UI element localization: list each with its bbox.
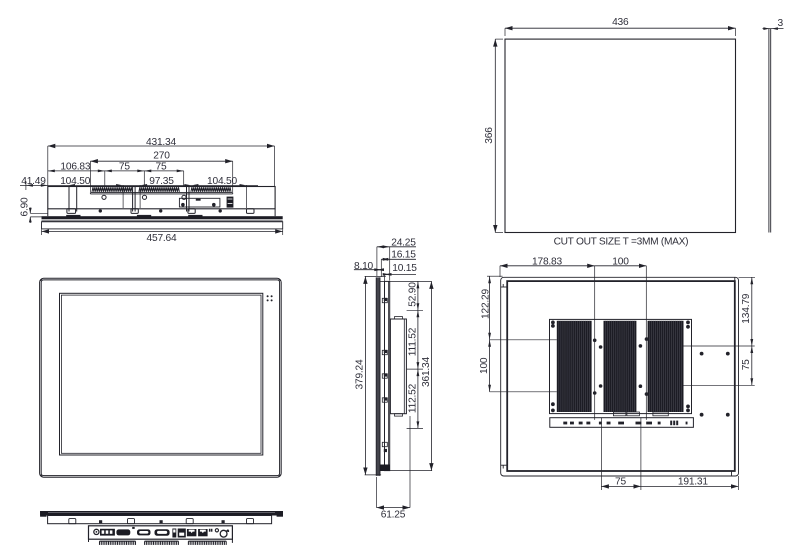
svg-text:100: 100: [612, 256, 629, 267]
svg-text:431.34: 431.34: [146, 137, 176, 148]
svg-text:6.90: 6.90: [20, 197, 31, 217]
svg-text:104.50: 104.50: [60, 176, 90, 187]
svg-text:16.15: 16.15: [391, 250, 416, 261]
svg-text:111.52: 111.52: [407, 327, 418, 356]
svg-text:134.79: 134.79: [741, 293, 752, 323]
svg-text:100: 100: [479, 357, 490, 374]
svg-text:361.34: 361.34: [421, 356, 432, 386]
svg-text:104.50: 104.50: [207, 176, 237, 187]
svg-text:191.31: 191.31: [678, 477, 708, 488]
svg-text:41.49: 41.49: [21, 176, 46, 187]
svg-text:52.90: 52.90: [407, 282, 418, 307]
svg-text:457.64: 457.64: [147, 233, 177, 244]
svg-text:270: 270: [153, 151, 170, 162]
svg-text:75: 75: [615, 477, 626, 488]
svg-text:122.29: 122.29: [480, 288, 491, 318]
svg-text:75: 75: [156, 162, 167, 173]
svg-text:112.52: 112.52: [407, 383, 418, 413]
svg-text:106.83: 106.83: [60, 162, 90, 173]
svg-text:24.25: 24.25: [391, 237, 416, 248]
svg-text:CUT OUT SIZE T =3MM (MAX): CUT OUT SIZE T =3MM (MAX): [554, 236, 689, 247]
svg-text:366: 366: [484, 127, 495, 144]
svg-text:8.10: 8.10: [354, 261, 374, 272]
svg-text:436: 436: [612, 17, 629, 28]
svg-text:75: 75: [741, 359, 752, 370]
svg-text:379.24: 379.24: [354, 359, 365, 389]
svg-text:97.35: 97.35: [149, 176, 174, 187]
svg-text:61.25: 61.25: [381, 510, 406, 521]
svg-text:75: 75: [119, 162, 130, 173]
svg-text:3: 3: [777, 18, 783, 29]
svg-text:10.15: 10.15: [392, 263, 417, 274]
svg-text:178.83: 178.83: [532, 256, 562, 267]
